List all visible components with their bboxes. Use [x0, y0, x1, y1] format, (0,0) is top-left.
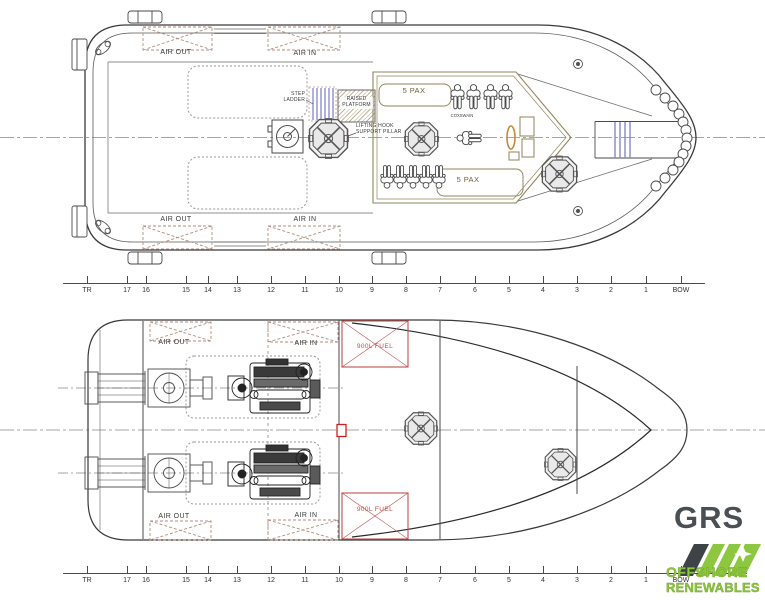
coxswain-label: COXSWAIN	[448, 112, 476, 120]
station-ruler-upper: TR1716151413121110987654321BOW	[0, 276, 765, 302]
fuel-tank-label: 900L FUEL	[343, 343, 407, 351]
ruler-tick	[208, 566, 209, 573]
ruler-station-label: 4	[530, 577, 556, 584]
ruler-baseline	[63, 573, 747, 574]
ruler-tick	[611, 566, 612, 573]
engine-port	[228, 359, 320, 413]
ruler-tick	[186, 276, 187, 283]
ruler-baseline	[63, 283, 705, 284]
ruler-station-label: 11	[292, 577, 318, 584]
ruler-station-label: 6	[462, 287, 488, 294]
air-in-label: AIR IN	[278, 340, 334, 348]
air-out-label: AIR OUT	[145, 339, 203, 347]
fuel-tank-label: 900L FUEL	[343, 506, 407, 514]
lifting-point	[337, 425, 346, 437]
ruler-tick	[339, 276, 340, 283]
station-ruler-lower: TR1716151413121110987654321BOW	[0, 566, 765, 592]
ruler-station-label: 12	[258, 577, 284, 584]
ruler-tick	[305, 566, 306, 573]
ruler-tick	[339, 566, 340, 573]
vent-boxes-lower	[150, 322, 338, 540]
ruler-tick	[475, 566, 476, 573]
ruler-tick	[237, 276, 238, 283]
ruler-station-label: 1	[633, 287, 659, 294]
deck-hatch	[541, 156, 577, 192]
ruler-station-label: 13	[224, 287, 250, 294]
coxswain-figure	[457, 131, 481, 144]
upper-deck-plan	[0, 11, 765, 264]
ruler-station-label: 3	[564, 287, 590, 294]
deck-hatch	[404, 412, 437, 445]
vessel-ga-drawing-page: AIR OUT AIR IN AIR OUT AIR IN 5 PAX 5 PA…	[0, 0, 765, 600]
ruler-station-label: 2	[598, 287, 624, 294]
air-in-label: AIR IN	[279, 50, 331, 58]
passenger-figures	[381, 85, 515, 189]
ruler-station-label: TR	[74, 577, 100, 584]
ruler-station-label: 10	[326, 287, 352, 294]
ruler-station-label: 16	[133, 577, 159, 584]
compass-binnacle	[268, 120, 303, 153]
step-ladder-label: STEPLADDER	[272, 92, 305, 104]
ruler-station-label: 13	[224, 577, 250, 584]
ruler-station-label: 5	[496, 287, 522, 294]
ruler-station-label: 4	[530, 287, 556, 294]
ruler-tick	[577, 276, 578, 283]
ruler-tick	[271, 276, 272, 283]
raised-platform-label: RAISEDPLATFORM	[340, 97, 373, 109]
logo-brand-text: GRS	[674, 502, 744, 534]
ruler-tick	[577, 566, 578, 573]
ruler-tick	[146, 566, 147, 573]
ruler-station-label: 9	[359, 287, 385, 294]
grs-offshore-renewables-logo: GRS OFFSHORE RENEWABLES	[666, 502, 765, 600]
ruler-station-label: 1	[633, 577, 659, 584]
pax-count-label: 5 PAX	[392, 87, 436, 95]
ruler-station-label: 9	[359, 577, 385, 584]
ruler-station-label: 8	[393, 577, 419, 584]
ruler-station-label: TR	[74, 287, 100, 294]
ruler-station-label: 3	[564, 577, 590, 584]
lifting-hook-label: LIFTING HOOKSUPPORT PILLAR	[356, 124, 408, 136]
ruler-tick	[87, 566, 88, 573]
ruler-tick	[543, 566, 544, 573]
step-ladder	[306, 87, 336, 121]
pax-count-label: 5 PAX	[446, 176, 490, 184]
ruler-tick	[440, 566, 441, 573]
ruler-station-label: 2	[598, 577, 624, 584]
ruler-station-label: 8	[393, 287, 419, 294]
ruler-tick	[611, 276, 612, 283]
ruler-station-label: 10	[326, 577, 352, 584]
ruler-tick	[305, 276, 306, 283]
engine-stbd	[228, 445, 320, 499]
ruler-tick	[271, 566, 272, 573]
air-in-label: AIR IN	[279, 216, 331, 224]
ruler-tick	[186, 566, 187, 573]
ruler-tick	[646, 276, 647, 283]
deck-hatch	[404, 122, 438, 156]
ruler-station-label: 6	[462, 577, 488, 584]
ruler-tick	[146, 276, 147, 283]
ruler-tick	[475, 276, 476, 283]
ruler-tick	[543, 276, 544, 283]
air-out-label: AIR OUT	[148, 216, 204, 224]
logo-line1-text: OFFSHORE	[666, 564, 765, 580]
ruler-station-label: 12	[258, 287, 284, 294]
ruler-tick	[237, 566, 238, 573]
air-out-label: AIR OUT	[148, 49, 204, 57]
ruler-station-label: 16	[133, 287, 159, 294]
air-in-label: AIR IN	[278, 512, 334, 520]
ruler-tick	[440, 276, 441, 283]
ruler-tick	[406, 566, 407, 573]
ruler-tick	[681, 276, 682, 283]
ruler-tick	[646, 566, 647, 573]
ruler-tick	[208, 276, 209, 283]
bow-fender-balls	[651, 85, 692, 191]
ruler-station-label: 7	[427, 577, 453, 584]
logo-line2-text: RENEWABLES	[666, 580, 765, 595]
ruler-station-label: 5	[496, 577, 522, 584]
ruler-station-label: 7	[427, 287, 453, 294]
deck-hatch	[544, 448, 576, 480]
ruler-tick	[406, 276, 407, 283]
ruler-station-label: 14	[195, 287, 221, 294]
ruler-tick	[87, 276, 88, 283]
ruler-tick	[372, 566, 373, 573]
air-out-label: AIR OUT	[145, 513, 203, 521]
ruler-tick	[509, 276, 510, 283]
ruler-tick	[372, 276, 373, 283]
deck-hatch	[309, 119, 349, 159]
ruler-station-label: 14	[195, 577, 221, 584]
ruler-tick	[127, 276, 128, 283]
ruler-tick	[509, 566, 510, 573]
ruler-station-label: 11	[292, 287, 318, 294]
ruler-tick	[127, 566, 128, 573]
bow-structure	[595, 85, 692, 191]
ruler-station-label: BOW	[668, 287, 694, 294]
